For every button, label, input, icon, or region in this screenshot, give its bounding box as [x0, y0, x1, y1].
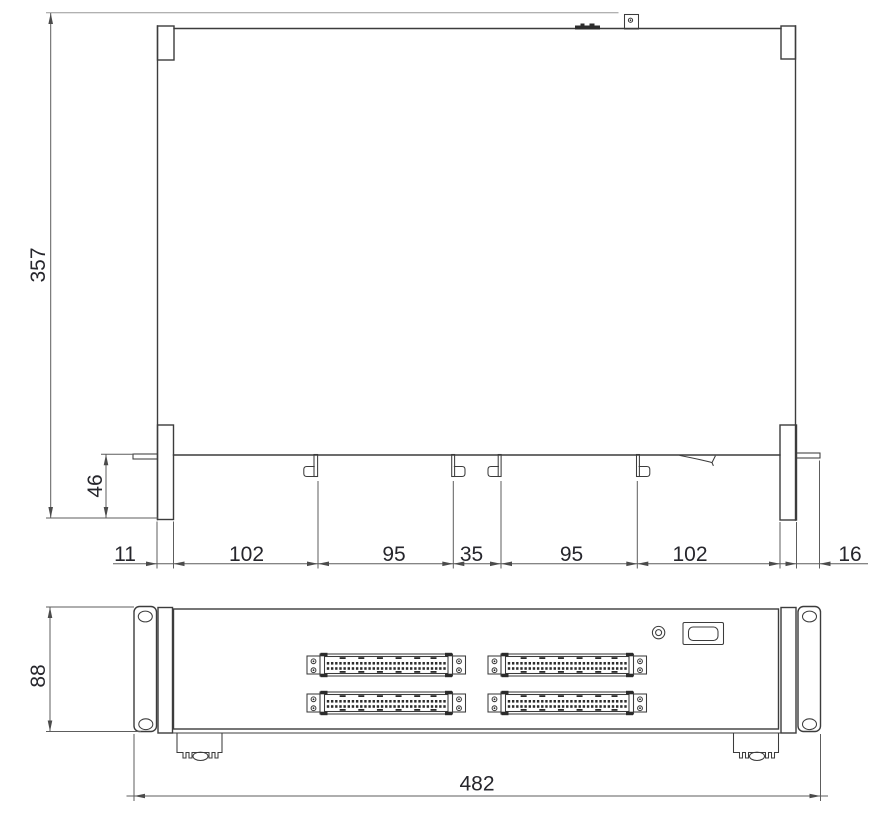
polarizing-notch — [358, 657, 364, 659]
contact-pin — [373, 705, 375, 708]
contact-pin — [377, 662, 379, 665]
dim-arrowhead — [442, 562, 453, 567]
contact-pin — [377, 700, 379, 703]
dim-arrowhead — [769, 562, 780, 567]
ear-side-flange-right — [781, 608, 796, 734]
jack-screw-center — [494, 669, 496, 671]
dim-label-chain-1: 102 — [229, 543, 264, 566]
contact-pin — [393, 667, 395, 670]
contact-pin — [373, 667, 375, 670]
contact-pin — [393, 700, 395, 703]
contact-pin — [591, 705, 593, 708]
front-ear-right — [780, 425, 797, 520]
contact-pin — [587, 667, 589, 670]
contact-pin — [541, 667, 543, 670]
contact-pin — [616, 700, 618, 703]
connector-array — [307, 653, 647, 715]
contact-pin — [529, 662, 531, 665]
contact-pin — [439, 700, 441, 703]
rear-vent-strip — [575, 26, 600, 30]
front-edge-wedge-tip — [712, 463, 713, 466]
latch-block — [445, 674, 452, 678]
latch-block — [502, 691, 509, 695]
dim-label-width: 482 — [459, 773, 494, 796]
contact-pin — [327, 662, 329, 665]
front-latch-hooks — [304, 455, 650, 477]
dim-height: 88 — [27, 607, 141, 732]
contact-pin — [327, 705, 329, 708]
contact-pin — [566, 700, 568, 703]
contact-pin — [331, 662, 333, 665]
led-outer-ring — [652, 626, 664, 638]
latch-foot — [454, 467, 465, 477]
dim-arrowhead — [490, 562, 501, 567]
polarizing-notch — [521, 695, 527, 697]
contact-pin — [524, 700, 526, 703]
contact-pin — [554, 662, 556, 665]
contact-pin — [327, 667, 329, 670]
contact-pin — [398, 705, 400, 708]
contact-pin — [423, 705, 425, 708]
top-view-dimensions: 357 46 11 102 95 35 95 102 16 — [27, 13, 868, 569]
ear-screw-slot — [803, 719, 817, 730]
latch-block — [445, 691, 452, 695]
power-led — [652, 626, 664, 638]
contact-pin — [545, 662, 547, 665]
polarizing-notch — [358, 709, 364, 711]
contact-pin — [508, 700, 510, 703]
contact-pin — [398, 662, 400, 665]
polarizing-notch — [558, 695, 564, 697]
dim-arrowhead — [453, 562, 464, 567]
contact-pin — [331, 705, 333, 708]
latch-block — [626, 674, 633, 678]
contact-pin — [595, 700, 597, 703]
contact-pin — [604, 662, 606, 665]
contact-pin — [435, 662, 437, 665]
polarizing-notch — [521, 671, 527, 673]
contact-pin — [579, 700, 581, 703]
contact-pin — [566, 705, 568, 708]
contact-pin — [624, 700, 626, 703]
contact-pin — [562, 662, 564, 665]
contact-pin — [368, 662, 370, 665]
contact-pin — [423, 700, 425, 703]
contact-pin — [352, 705, 354, 708]
contact-pin — [562, 667, 564, 670]
contact-pin — [612, 700, 614, 703]
contact-pin — [364, 705, 366, 708]
contact-pin — [373, 662, 375, 665]
contact-pin — [343, 700, 345, 703]
contact-pin — [385, 667, 387, 670]
contact-pin — [545, 700, 547, 703]
polarizing-notch — [377, 709, 383, 711]
contact-pin — [591, 662, 593, 665]
contact-pin — [541, 700, 543, 703]
polarizing-notch — [431, 695, 437, 697]
polarizing-notch — [358, 695, 364, 697]
contact-pin — [360, 667, 362, 670]
contact-pin — [516, 705, 518, 708]
contact-pin — [591, 667, 593, 670]
contact-pin — [520, 662, 522, 665]
ear-side-flange-left — [158, 608, 173, 734]
contact-pin — [381, 705, 383, 708]
contact-pin — [604, 700, 606, 703]
contact-pin — [393, 662, 395, 665]
contact-pin — [385, 700, 387, 703]
jack-screw-center — [494, 698, 496, 700]
contact-pin — [398, 667, 400, 670]
ear-screw-slot — [803, 611, 817, 622]
polarizing-notch — [577, 709, 583, 711]
contact-pin — [410, 662, 412, 665]
rear-hanger-tab — [625, 15, 639, 30]
contact-pin — [529, 700, 531, 703]
contact-pin — [352, 662, 354, 665]
contact-pin — [616, 667, 618, 670]
polarizing-notch — [431, 671, 437, 673]
contact-pin — [533, 705, 535, 708]
contact-pin — [520, 700, 522, 703]
rear-corner-tab-left — [158, 26, 175, 60]
latch-block — [321, 691, 328, 695]
contact-pin — [364, 700, 366, 703]
contact-pin — [356, 662, 358, 665]
contact-pin — [381, 662, 383, 665]
contact-pin — [574, 700, 576, 703]
contact-pin — [566, 662, 568, 665]
contact-pin — [524, 705, 526, 708]
latch-bar — [637, 455, 640, 477]
contact-pin — [608, 700, 610, 703]
contact-pin — [348, 662, 350, 665]
contact-pin — [339, 662, 341, 665]
dim-label-chain-4: 95 — [560, 543, 583, 566]
polarizing-notch — [521, 709, 527, 711]
led-inner-ring — [656, 630, 662, 636]
contact-pin — [599, 705, 601, 708]
rack-ear-plate-right — [798, 607, 821, 732]
contact-pin — [595, 705, 597, 708]
contact-pin — [516, 662, 518, 665]
contact-pin — [414, 662, 416, 665]
jack-screw-center — [458, 698, 460, 700]
latch-foot — [488, 467, 498, 477]
contact-pin — [368, 667, 370, 670]
dim-arrowhead — [626, 562, 637, 567]
contact-pin — [579, 667, 581, 670]
contact-pin — [574, 705, 576, 708]
pin-field-frame — [325, 657, 449, 674]
jack-screw-center — [639, 669, 641, 671]
contact-pin — [335, 700, 337, 703]
contact-pin — [423, 662, 425, 665]
contact-pin — [541, 705, 543, 708]
dim-arrowhead — [104, 454, 109, 465]
contact-pin — [508, 667, 510, 670]
contact-pin — [435, 705, 437, 708]
dim-arrowhead — [48, 721, 53, 732]
dim-arrowhead — [501, 562, 512, 567]
polarizing-notch — [539, 671, 545, 673]
contact-pin — [537, 667, 539, 670]
front-ear-left — [158, 425, 174, 520]
contact-pin — [545, 705, 547, 708]
dim-label-chain-2: 95 — [382, 543, 405, 566]
mount-flange-left — [133, 454, 158, 459]
jack-screw-center — [639, 698, 641, 700]
dim-overall-width: 482 — [127, 734, 829, 801]
contact-pin — [608, 667, 610, 670]
latch-block — [626, 691, 633, 695]
contact-pin — [554, 667, 556, 670]
latch-block — [626, 653, 633, 657]
latch-block — [445, 653, 452, 657]
contact-pin — [583, 667, 585, 670]
contact-pin — [599, 662, 601, 665]
contact-pin — [612, 662, 614, 665]
rear-corner-tab-right — [781, 26, 796, 59]
contact-pin — [402, 662, 404, 665]
polarizing-notch — [377, 657, 383, 659]
latch-block — [502, 712, 509, 716]
contact-pin — [439, 662, 441, 665]
power-switch — [683, 623, 724, 645]
contact-pin — [427, 700, 429, 703]
contact-pin — [512, 667, 514, 670]
contact-pin — [620, 667, 622, 670]
dim-label-recess: 46 — [84, 474, 107, 497]
contact-pin — [410, 700, 412, 703]
latch-block — [445, 712, 452, 716]
connector-4 — [488, 691, 647, 715]
rear-vent-tab — [581, 24, 585, 27]
contact-pin — [620, 700, 622, 703]
mount-flange-right — [797, 453, 821, 458]
contact-pin — [414, 705, 416, 708]
contact-pin — [608, 662, 610, 665]
contact-pin — [554, 700, 556, 703]
contact-pin — [579, 662, 581, 665]
contact-pin — [570, 705, 572, 708]
polarizing-notch — [558, 671, 564, 673]
contact-pin — [406, 700, 408, 703]
contact-pin — [377, 667, 379, 670]
latch-block — [321, 674, 328, 678]
connector-2 — [488, 653, 647, 677]
contact-pin — [389, 700, 391, 703]
contact-pin — [418, 700, 420, 703]
contact-pin — [368, 705, 370, 708]
dim-label-chain-6: 16 — [838, 543, 861, 566]
jack-screw-center — [313, 707, 315, 709]
dim-label-chain-0: 11 — [114, 543, 136, 566]
contact-pin — [343, 705, 345, 708]
front-panel — [174, 609, 779, 729]
contact-pin — [512, 705, 514, 708]
contact-pin — [348, 667, 350, 670]
polarizing-notch — [414, 657, 420, 659]
contact-pin — [595, 662, 597, 665]
polarizing-notch — [558, 657, 564, 659]
contact-pin — [431, 700, 433, 703]
polarizing-notch — [577, 695, 583, 697]
latch-block — [321, 712, 328, 716]
polarizing-notch — [612, 709, 618, 711]
rear-hanger-hole-center — [630, 19, 632, 21]
dim-front-recess: 46 — [84, 454, 134, 518]
contact-pin — [414, 700, 416, 703]
polarizing-notch — [396, 671, 402, 673]
contact-pin — [558, 705, 560, 708]
contact-pin — [381, 700, 383, 703]
contact-pin — [402, 667, 404, 670]
contact-pin — [599, 667, 601, 670]
jack-screw-center — [639, 707, 641, 709]
contact-pin — [435, 667, 437, 670]
contact-pin — [343, 662, 345, 665]
contact-pin — [570, 667, 572, 670]
contact-pin — [570, 700, 572, 703]
contact-pin — [604, 667, 606, 670]
polarizing-notch — [612, 695, 618, 697]
contact-pin — [389, 667, 391, 670]
contact-pin — [537, 700, 539, 703]
latch-bar — [314, 455, 318, 477]
contact-pin — [352, 667, 354, 670]
contact-pin — [537, 705, 539, 708]
dim-label-height: 88 — [27, 664, 50, 687]
contact-pin — [410, 667, 412, 670]
contact-pin — [558, 667, 560, 670]
contact-pin — [439, 705, 441, 708]
latch-block — [502, 653, 509, 657]
latch-block — [626, 712, 633, 716]
rack-ear-plate-left — [134, 607, 157, 732]
contact-pin — [360, 705, 362, 708]
drawing-canvas: 357 46 11 102 95 35 95 102 16 — [0, 0, 893, 814]
polarizing-notch — [340, 657, 346, 659]
contact-pin — [595, 667, 597, 670]
dim-arrowhead — [104, 507, 109, 518]
contact-pin — [529, 705, 531, 708]
polarizing-notch — [612, 671, 618, 673]
contact-pin — [402, 705, 404, 708]
contact-pin — [431, 662, 433, 665]
contact-pin — [608, 705, 610, 708]
dimension-drawing: 357 46 11 102 95 35 95 102 16 — [0, 0, 893, 814]
contact-pin — [398, 700, 400, 703]
contact-pin — [431, 667, 433, 670]
contact-pin — [599, 700, 601, 703]
dim-arrowhead — [134, 794, 145, 799]
polarizing-notch — [414, 671, 420, 673]
contact-pin — [549, 662, 551, 665]
polarizing-notch — [396, 657, 402, 659]
dim-label-chain-5: 102 — [672, 543, 707, 566]
contact-pin — [393, 705, 395, 708]
contact-pin — [524, 662, 526, 665]
contact-pin — [443, 667, 445, 670]
polarizing-notch — [577, 657, 583, 659]
jack-screw-center — [458, 660, 460, 662]
contact-pin — [435, 700, 437, 703]
contact-pin — [373, 700, 375, 703]
dimension-arrows — [48, 13, 831, 798]
contact-pin — [524, 667, 526, 670]
contact-pin — [418, 667, 420, 670]
latch-foot — [639, 467, 650, 477]
switch-rocker — [689, 627, 719, 641]
contact-pin — [583, 700, 585, 703]
contact-pin — [545, 667, 547, 670]
jack-screw-center — [458, 707, 460, 709]
contact-pin — [533, 700, 535, 703]
polarizing-notch — [539, 709, 545, 711]
contact-pin — [443, 705, 445, 708]
contact-pin — [418, 705, 420, 708]
pin-field-frame — [506, 657, 630, 674]
chassis-foot-right — [734, 733, 779, 761]
contact-pin — [516, 667, 518, 670]
polarizing-notch — [539, 657, 545, 659]
dim-arrowhead — [820, 562, 831, 567]
top-view — [133, 15, 820, 521]
polarizing-notch — [414, 695, 420, 697]
polarizing-notch — [431, 709, 437, 711]
rear-vent-tab — [590, 24, 595, 27]
polarizing-notch — [377, 695, 383, 697]
contact-pin — [406, 662, 408, 665]
polarizing-notch — [414, 709, 420, 711]
jack-screw-center — [494, 707, 496, 709]
contact-pin — [554, 705, 556, 708]
contact-pin — [389, 662, 391, 665]
contact-pin — [331, 667, 333, 670]
contact-pin — [512, 662, 514, 665]
polarizing-notch — [340, 709, 346, 711]
contact-pin — [360, 700, 362, 703]
contact-pin — [558, 662, 560, 665]
jack-screw-center — [313, 698, 315, 700]
polarizing-notch — [595, 709, 601, 711]
contact-pin — [377, 705, 379, 708]
contact-pin — [348, 705, 350, 708]
dim-arrowhead — [786, 562, 797, 567]
contact-pin — [352, 700, 354, 703]
front-view-dimensions: 88 482 — [27, 607, 828, 801]
front-edge-wedge — [680, 456, 715, 463]
polarizing-notch — [539, 695, 545, 697]
polarizing-notch — [396, 695, 402, 697]
contact-pin — [520, 705, 522, 708]
contact-pin — [339, 705, 341, 708]
contact-pin — [587, 700, 589, 703]
contact-pin — [537, 662, 539, 665]
contact-pin — [508, 705, 510, 708]
latch-bar — [498, 455, 501, 477]
ear-screw-slot — [139, 719, 153, 730]
contact-pin — [562, 700, 564, 703]
contact-pin — [508, 662, 510, 665]
dim-arrowhead — [146, 562, 157, 567]
contact-pin — [335, 662, 337, 665]
dim-arrowhead — [318, 562, 329, 567]
dim-arrowhead — [174, 562, 185, 567]
contact-pin — [579, 705, 581, 708]
